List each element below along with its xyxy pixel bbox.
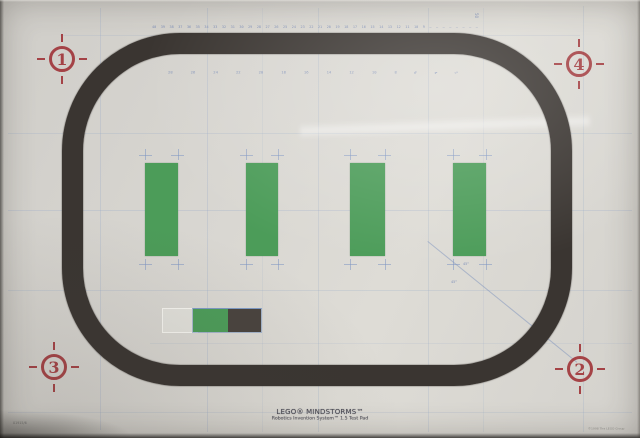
pad-title: LEGO® MINDSTORMS™: [0, 408, 640, 416]
ruler-tick-label: 37: [178, 25, 182, 29]
ruler-tick-label: 12: [397, 25, 401, 29]
vertical-ruler-label: 50: [473, 13, 478, 18]
marker-circle: 1: [49, 46, 75, 72]
ruler-tick-label: 31: [231, 25, 235, 29]
ruler-tick-label: 33: [213, 25, 217, 29]
ruler-tick-label: 20: [327, 25, 331, 29]
marker-circle: 3: [41, 354, 67, 380]
crosshair-dash: [61, 34, 63, 42]
ruler-tick-label: 26: [274, 25, 278, 29]
photo-edge: [0, 0, 4, 438]
crosshair-dash: [596, 63, 604, 65]
ruler-tick-label: 13: [388, 25, 392, 29]
corner-marker-2: 2: [567, 356, 593, 382]
crosshair-dash: [554, 63, 562, 65]
ruler-tick-label: 35: [196, 25, 200, 29]
pad-footer: LEGO® MINDSTORMS™ Robotics Invention Sys…: [0, 408, 640, 422]
crosshair-dash: [597, 368, 605, 370]
ruler-tick-label: 38: [169, 25, 173, 29]
crosshair-dash: [555, 368, 563, 370]
oval-track: [62, 33, 572, 386]
part-code: 01915/6: [13, 421, 27, 425]
crosshair-dash: [53, 342, 55, 350]
ruler-tick-label: 19: [335, 25, 339, 29]
ruler-tick-label: 22: [309, 25, 313, 29]
ruler-tick-label: 39: [161, 25, 165, 29]
copyright-note: ©1998 The LEGO Group: [588, 427, 624, 431]
corner-marker-4: 4: [566, 51, 592, 77]
ruler-tick-label: 9: [423, 25, 425, 29]
crosshair-dash: [53, 384, 55, 392]
test-pad-photo: 4039383736353433323130292827262524232221…: [0, 0, 640, 438]
crosshair-dash: [579, 386, 581, 394]
ruler-tick-label: 28: [257, 25, 261, 29]
ruler-tick-label: 16: [362, 25, 366, 29]
crosshair-dash: [578, 81, 580, 89]
crosshair-dash: [37, 58, 45, 60]
ruler-tick-label: 14: [379, 25, 383, 29]
ruler-tick-label: 18: [344, 25, 348, 29]
ruler-tick-label: 40: [152, 25, 156, 29]
ruler-tick-label: 27: [266, 25, 270, 29]
ruler-tick-label: –: [443, 25, 445, 29]
photo-edge: [0, 0, 640, 2]
crosshair-dash: [579, 344, 581, 352]
ruler-tick-label: –: [456, 25, 458, 29]
ruler-tick-label: –: [469, 25, 471, 29]
ruler-tick-label: 32: [222, 25, 226, 29]
ruler-tick-label: 10: [414, 25, 418, 29]
marker-circle: 2: [567, 356, 593, 382]
crosshair-dash: [578, 39, 580, 47]
ruler-tick-label: –: [449, 25, 451, 29]
ruler-tick-label: 23: [300, 25, 304, 29]
ruler-tick-label: 25: [283, 25, 287, 29]
marker-circle: 4: [566, 51, 592, 77]
ruler-tick-label: 36: [187, 25, 191, 29]
ruler-tick-label: 11: [405, 25, 409, 29]
ruler-tick-label: 15: [370, 25, 374, 29]
ruler-tick-label: –: [463, 25, 465, 29]
ruler-tick-label: –: [429, 25, 431, 29]
ruler-tick-label: 17: [353, 25, 357, 29]
ruler-tick-label: –: [436, 25, 438, 29]
crosshair-dash: [71, 366, 79, 368]
ruler-tick-label: 24: [292, 25, 296, 29]
crosshair-dash: [79, 58, 87, 60]
ruler-tick-label: 29: [248, 25, 252, 29]
photo-edge: [0, 433, 640, 438]
top-ruler-scale: 4039383736353433323130292827262524232221…: [152, 25, 478, 29]
crosshair-dash: [61, 76, 63, 84]
crosshair-dash: [29, 366, 37, 368]
pad-subtitle: Robotics Invention System™ 1.5 Test Pad: [48, 416, 592, 421]
ruler-tick-label: –: [476, 25, 478, 29]
corner-marker-3: 3: [41, 354, 67, 380]
corner-marker-1: 1: [49, 46, 75, 72]
ruler-tick-label: 30: [239, 25, 243, 29]
